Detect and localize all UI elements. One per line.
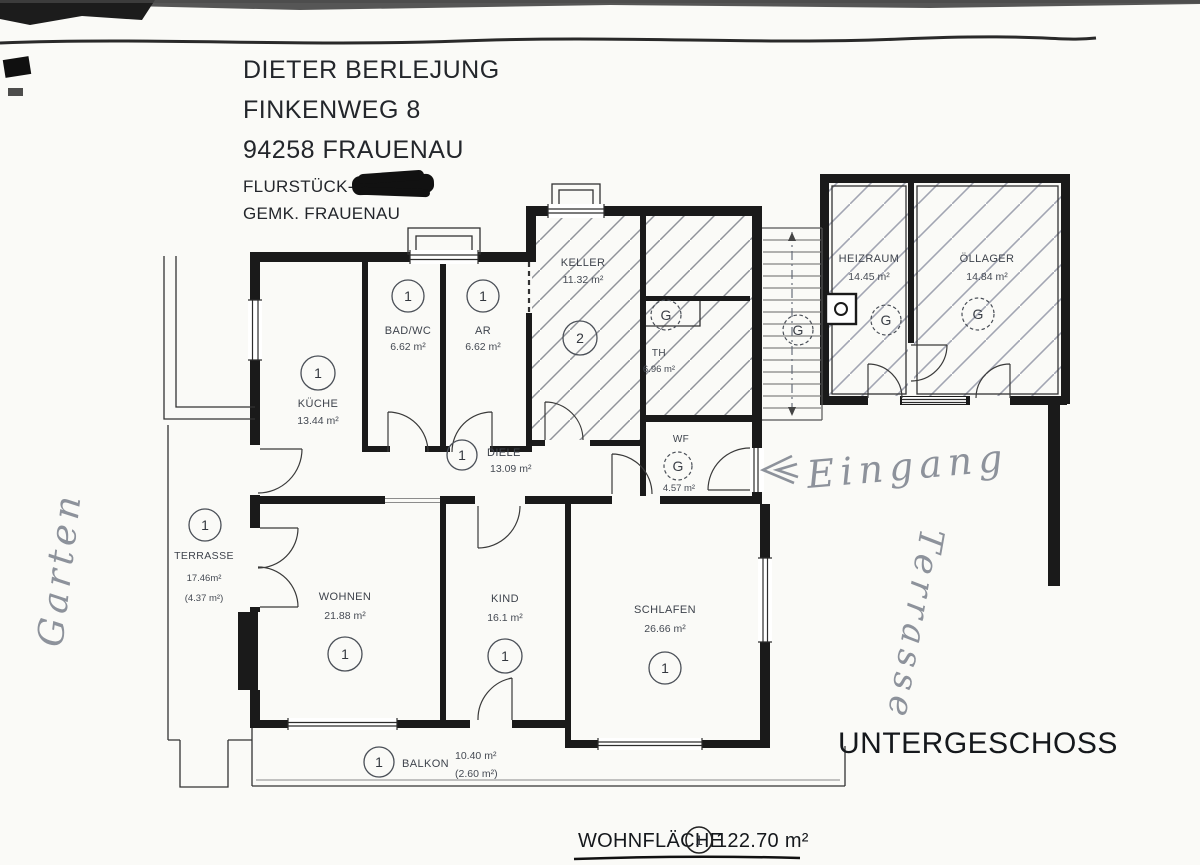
oellager-area: 14.84 m² [966, 271, 1008, 283]
terrace-outline [168, 425, 252, 787]
badwc-area: 6.62 m² [390, 341, 426, 353]
diele-name: DIELE [487, 447, 521, 459]
kind-door [478, 506, 520, 548]
handwriting-garten: Garten [30, 489, 90, 649]
gemarkung-line: GEMK. FRAUENAU [243, 204, 400, 223]
oellager-hatch [914, 183, 1061, 396]
balkon-name: BALKON [402, 758, 449, 770]
schlafen-area: 26.66 m² [644, 623, 686, 635]
schlafen-right-window [758, 558, 772, 642]
heizraum-marker: G [881, 312, 892, 328]
hall-marker: G [661, 307, 672, 323]
kind-area: 16.1 m² [487, 612, 523, 624]
heizraum-chimney-symbol [826, 294, 856, 324]
kueche-marker: 1 [314, 365, 322, 381]
entrance-door-swing [708, 448, 750, 490]
balkon-marker: 1 [375, 754, 383, 770]
keller-top-window [548, 204, 604, 218]
wohnen-french-doors [258, 528, 298, 607]
wohnen-name: WOHNEN [319, 591, 372, 603]
balcony-outline [252, 728, 845, 786]
kueche-left-window [248, 300, 262, 360]
ar-door [452, 412, 492, 452]
handwritten-annotations: Garten Eingang Terrasse [30, 436, 1010, 726]
stair-arrow-top [788, 232, 796, 241]
street-line: FINKENWEG 8 [243, 96, 421, 124]
oellager-name: ÖLLAGER [960, 253, 1015, 265]
flurstueck-redaction-blob [352, 170, 435, 198]
floorplan-svg: DIETER BERLEJUNG FINKENWEG 8 94258 FRAUE… [0, 0, 1200, 865]
kueche-terrace-door [258, 449, 302, 493]
stair-arrow-bottom [788, 407, 796, 416]
wf-marker: G [673, 458, 684, 474]
badwc-marker: 1 [404, 288, 412, 304]
schlafen-name: SCHLAFEN [634, 604, 696, 616]
ar-marker: 1 [479, 288, 487, 304]
kueche-name: KÜCHE [298, 398, 339, 410]
terrasse-marker: 1 [201, 517, 209, 533]
wohnen-marker: 1 [341, 646, 349, 662]
th-name: TH [652, 348, 666, 359]
ar-name: AR [475, 325, 491, 337]
schlafen-bottom-window [598, 738, 702, 750]
diele-area: 13.09 m² [490, 463, 532, 475]
handwriting-eingang: Eingang [804, 436, 1010, 498]
bad-top-window [410, 250, 478, 264]
address-stamp: DIETER BERLEJUNG FINKENWEG 8 94258 FRAUE… [243, 56, 500, 223]
terrasse-area2: (4.37 m²) [185, 593, 224, 604]
ar-area: 6.62 m² [465, 341, 501, 353]
badwc-name: BAD/WC [385, 325, 431, 337]
terrasse-name: TERRASSE [174, 550, 234, 562]
handwriting-terrasse: Terrasse [878, 525, 951, 725]
balkon-area: 10.40 m² [455, 750, 497, 762]
kind-name: KIND [491, 593, 519, 605]
wf-area: 4.57 m² [663, 483, 695, 494]
wohnflaeche-marker: 1 [695, 832, 703, 848]
oellager-marker: G [973, 306, 984, 322]
kueche-area: 13.44 m² [297, 415, 339, 427]
th-area: 6.96 m² [643, 364, 675, 375]
heizraum-area: 14.45 m² [848, 271, 890, 283]
scan-artifacts [0, 0, 1200, 96]
heizraum-name: HEIZRAUM [839, 253, 900, 265]
keller-name: KELLER [561, 257, 606, 269]
keller-area: 11.32 m² [563, 274, 604, 286]
scanned-floorplan-page: DIETER BERLEJUNG FINKENWEG 8 94258 FRAUE… [0, 0, 1200, 865]
terrasse-area: 17.46m² [187, 573, 222, 584]
wohnen-bottom-window [288, 718, 397, 730]
diele-marker: 1 [458, 447, 466, 463]
kind-balcony-door [478, 678, 512, 720]
balkon-area2: (2.60 m²) [455, 768, 498, 780]
schlafen-marker: 1 [661, 660, 669, 676]
kind-marker: 1 [501, 648, 509, 664]
wide-opening-threshold [385, 499, 440, 503]
wohnen-area: 21.88 m² [324, 610, 366, 622]
badwc-door [388, 412, 428, 452]
owner-name: DIETER BERLEJUNG [243, 56, 500, 84]
exterior-stair-well [164, 256, 255, 419]
plan-title: UNTERGESCHOSS [838, 727, 1118, 760]
keller-marker: 2 [576, 330, 584, 346]
keller-hatch [532, 216, 640, 440]
eingang-arrow-icon [763, 456, 798, 483]
annex-bottom-window [902, 397, 966, 404]
stairs-marker: G [793, 322, 804, 338]
wohnflaeche-value: 122.70 m² [716, 830, 809, 852]
summary-underline [574, 857, 800, 859]
city-line: 94258 FRAUENAU [243, 136, 464, 164]
wf-name: WF [673, 434, 689, 445]
